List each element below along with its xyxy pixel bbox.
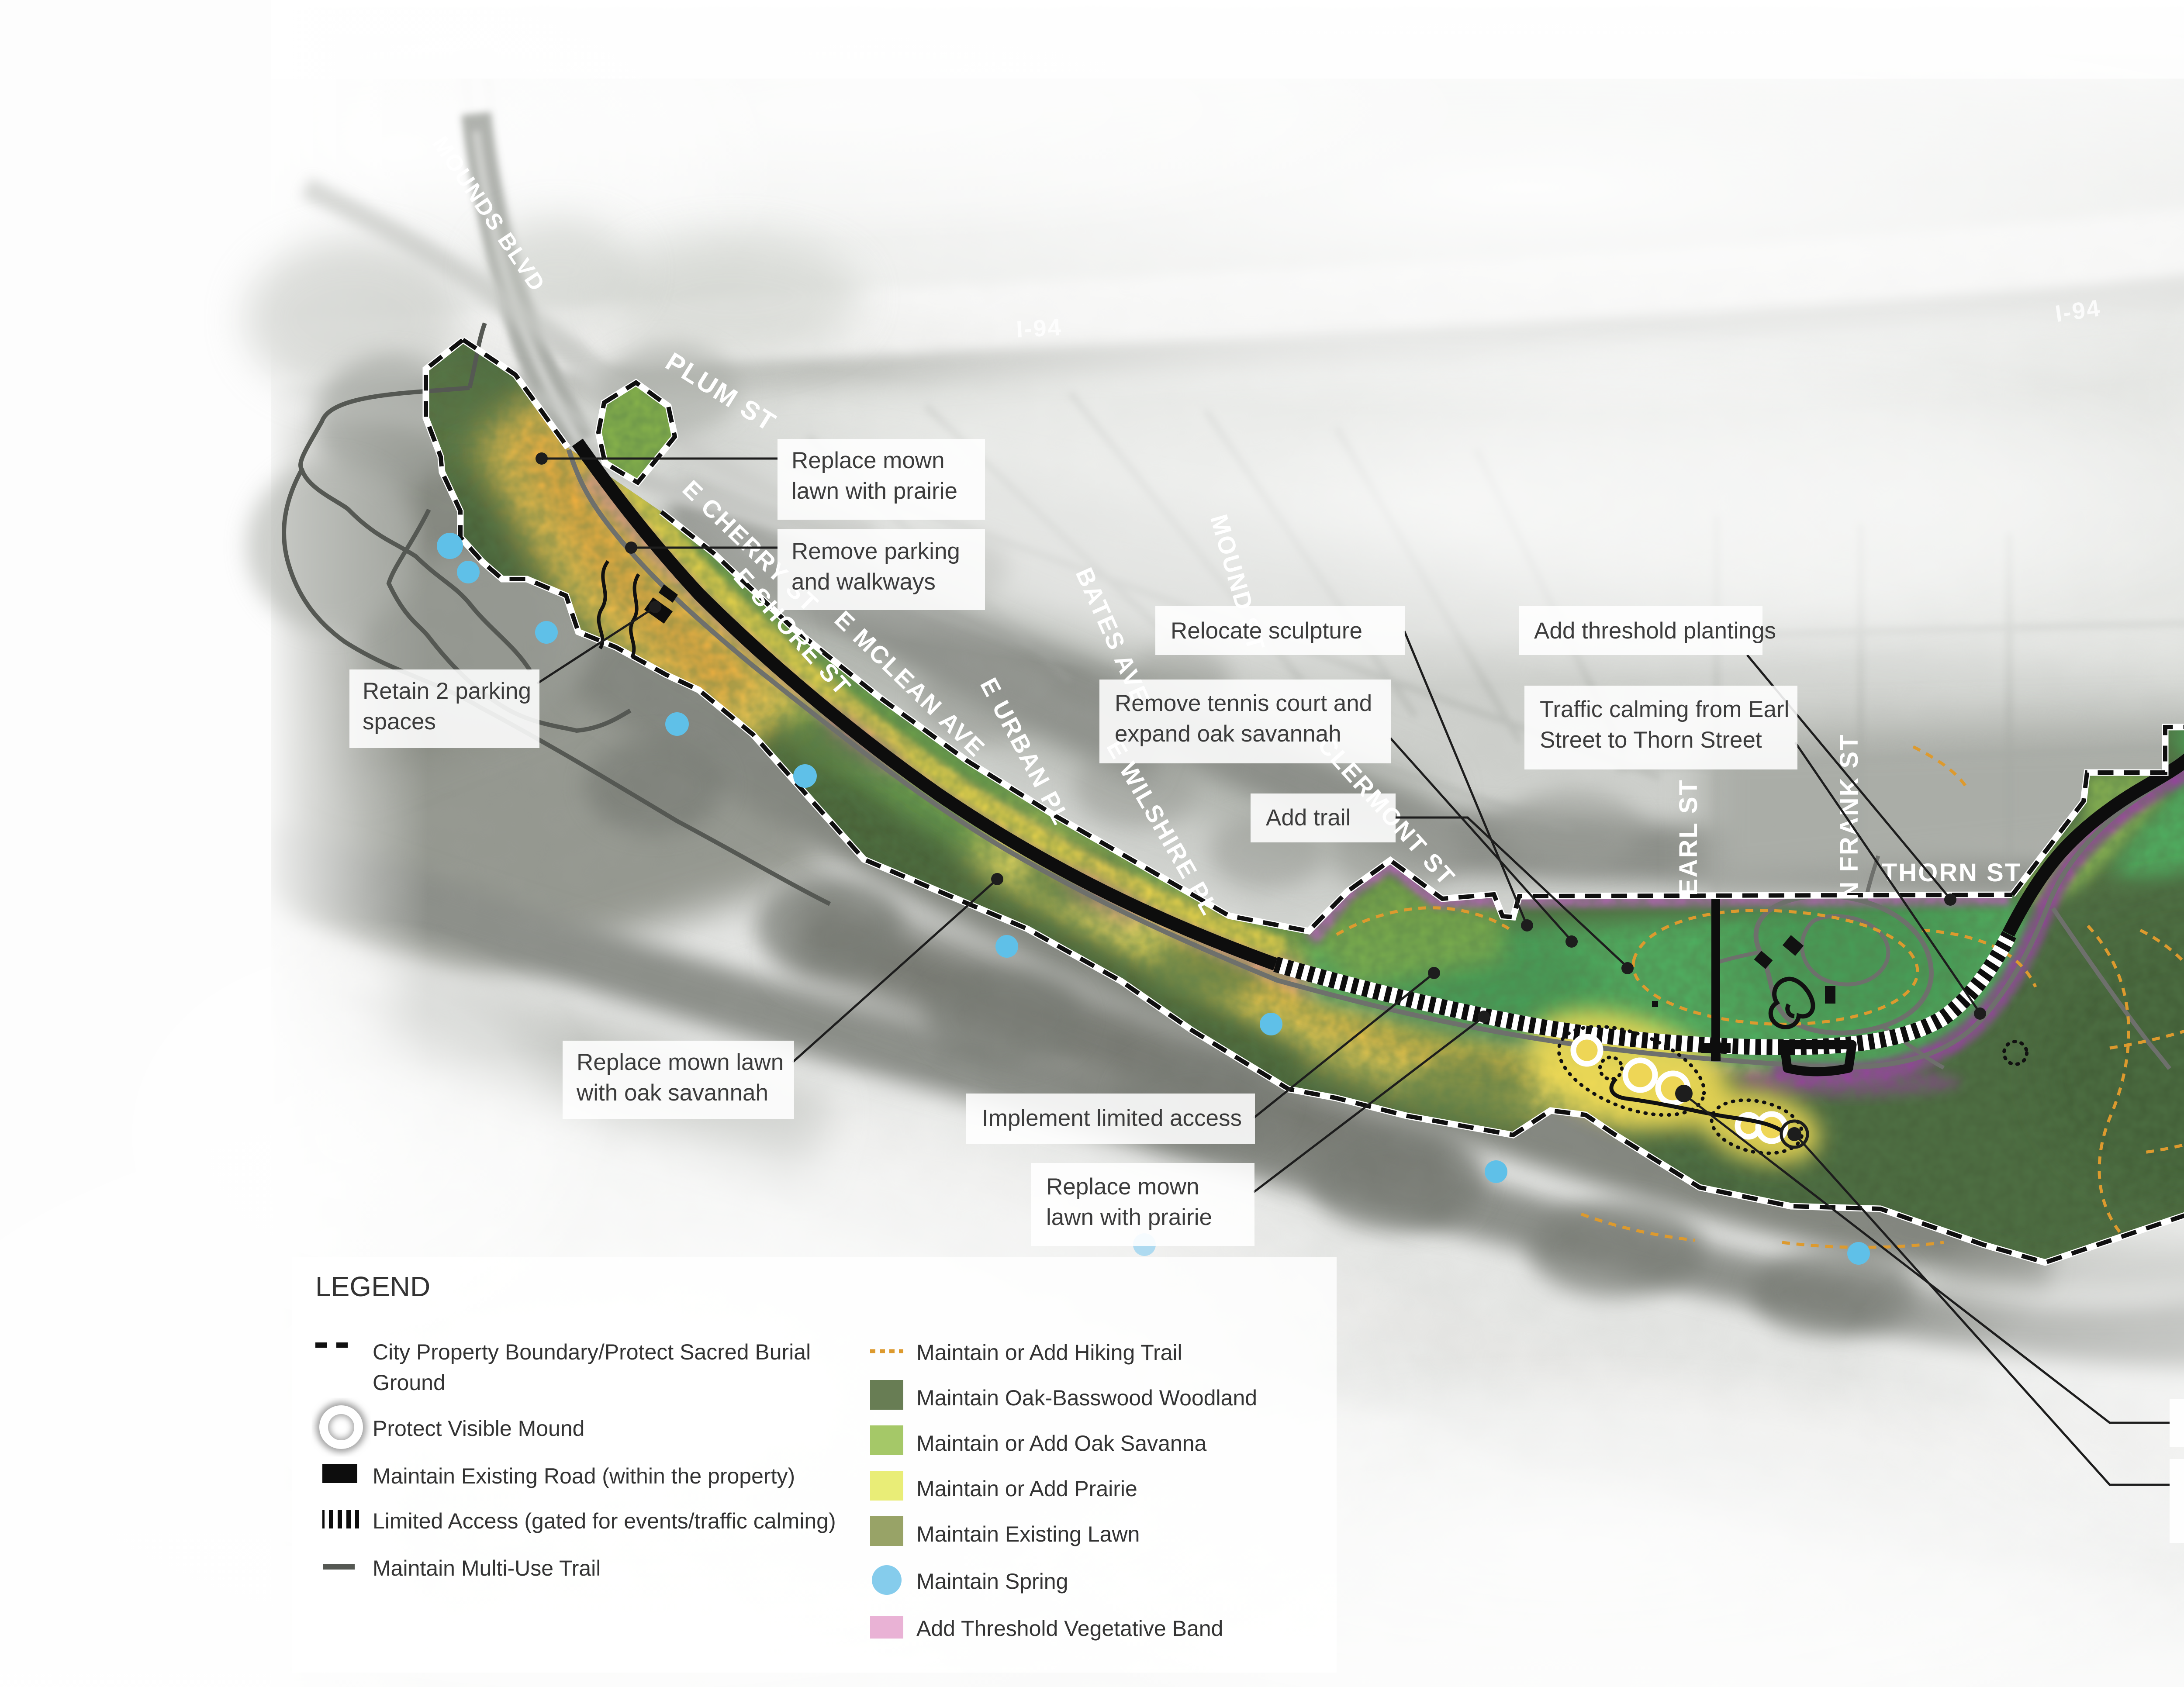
svg-text:THORN ST: THORN ST xyxy=(1882,859,2022,887)
svg-text:Implement limited access: Implement limited access xyxy=(982,1105,1242,1131)
svg-text:EARL ST: EARL ST xyxy=(1674,779,1703,896)
svg-text:Relocate sculpture: Relocate sculpture xyxy=(1171,618,1362,644)
svg-text:Protect Visible Mound: Protect Visible Mound xyxy=(373,1416,584,1441)
svg-text:Traffic calming from Earl: Traffic calming from Earl xyxy=(1540,697,1789,722)
svg-text:spaces: spaces xyxy=(363,709,436,735)
svg-text:with oak savannah: with oak savannah xyxy=(576,1080,768,1106)
svg-text:Maintain Existing Road (within: Maintain Existing Road (within the prope… xyxy=(373,1464,795,1488)
svg-text:Add trail: Add trail xyxy=(1266,805,1351,831)
svg-text:Maintain Oak-Basswood Woodland: Maintain Oak-Basswood Woodland xyxy=(916,1386,1257,1410)
svg-text:Street to Thorn Street: Street to Thorn Street xyxy=(1540,727,1762,753)
svg-text:LEGEND: LEGEND xyxy=(315,1271,430,1302)
svg-text:Remove parking: Remove parking xyxy=(791,538,960,564)
svg-text:Add Threshold Vegetative Band: Add Threshold Vegetative Band xyxy=(916,1616,1223,1641)
svg-text:lawn with prairie: lawn with prairie xyxy=(1046,1204,1212,1230)
svg-text:Add threshold plantings: Add threshold plantings xyxy=(1534,618,1776,644)
svg-text:I-94: I-94 xyxy=(1016,314,1063,342)
svg-text:Replace mown lawn: Replace mown lawn xyxy=(577,1049,784,1075)
svg-text:Maintain Spring: Maintain Spring xyxy=(916,1569,1068,1594)
svg-text:Maintain or Add Hiking Trail: Maintain or Add Hiking Trail xyxy=(916,1340,1182,1365)
svg-text:expand oak savannah: expand oak savannah xyxy=(1115,721,1341,747)
svg-text:lawn with prairie: lawn with prairie xyxy=(791,478,957,504)
svg-text:N FRANK ST: N FRANK ST xyxy=(1835,733,1863,900)
svg-text:Replace mown: Replace mown xyxy=(1046,1174,1199,1200)
svg-text:Maintain or Add Oak Savanna: Maintain or Add Oak Savanna xyxy=(916,1431,1206,1456)
svg-text:City Property Boundary/Protect: City Property Boundary/Protect Sacred Bu… xyxy=(373,1340,811,1364)
svg-text:and walkways: and walkways xyxy=(791,569,936,595)
svg-text:Maintain Existing Lawn: Maintain Existing Lawn xyxy=(916,1522,1140,1546)
svg-text:Maintain Multi-Use Trail: Maintain Multi-Use Trail xyxy=(373,1556,601,1580)
svg-text:Replace mown: Replace mown xyxy=(791,448,945,473)
svg-text:Ground: Ground xyxy=(373,1370,446,1395)
svg-text:Limited Access (gated for even: Limited Access (gated for events/traffic… xyxy=(373,1509,836,1533)
svg-text:Retain 2 parking: Retain 2 parking xyxy=(363,678,531,704)
svg-text:Maintain or Add Prairie: Maintain or Add Prairie xyxy=(916,1477,1137,1501)
svg-text:Remove tennis court and: Remove tennis court and xyxy=(1115,690,1372,716)
